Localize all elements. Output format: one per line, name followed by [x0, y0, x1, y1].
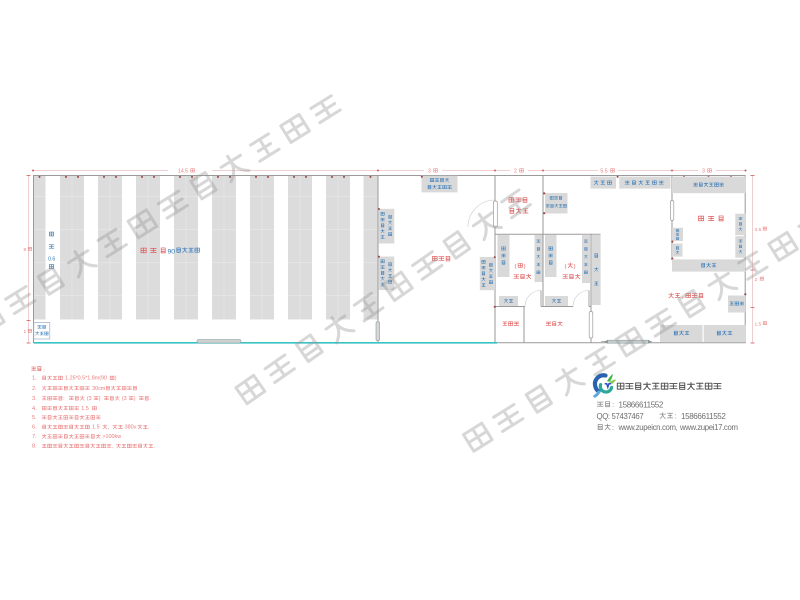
svg-text:QQ:: QQ: [597, 412, 610, 421]
svg-text:.: . [154, 444, 156, 450]
svg-text:,: , [108, 425, 110, 431]
svg-text:(3: (3 [122, 396, 127, 402]
svg-text:15866611552: 15866611552 [619, 400, 664, 409]
svg-text:,: , [112, 444, 114, 450]
svg-text:): ) [115, 376, 117, 382]
svg-text:15866611552: 15866611552 [681, 412, 726, 421]
svg-text:1.: 1. [32, 376, 37, 382]
svg-text:3.: 3. [32, 396, 37, 402]
svg-text:3: 3 [702, 169, 705, 175]
svg-text:4.: 4. [32, 406, 37, 412]
svg-text:0.6: 0.6 [48, 257, 55, 263]
svg-text:1.5: 1.5 [755, 321, 762, 327]
svg-text:8.: 8. [32, 444, 37, 450]
svg-text:1: 1 [24, 329, 27, 335]
svg-text:1.25*0.5*1.8m(90: 1.25*0.5*1.8m(90 [65, 376, 107, 382]
svg-text::: : [63, 396, 65, 402]
svg-text:.: . [149, 396, 151, 402]
svg-text:8: 8 [24, 247, 27, 253]
svg-text:6.: 6. [32, 425, 37, 431]
svg-text:(3: (3 [87, 396, 92, 402]
svg-text:www.zupei17.com: www.zupei17.com [679, 423, 738, 432]
svg-text:3.5: 3.5 [755, 227, 762, 233]
svg-text:3: 3 [428, 169, 431, 175]
svg-text:2: 2 [755, 277, 758, 283]
svg-text:57437467: 57437467 [612, 412, 644, 421]
svg-text:90: 90 [168, 248, 176, 255]
svg-text:(: ( [515, 264, 517, 270]
svg-text:1.5: 1.5 [92, 425, 100, 431]
svg-text:14.5: 14.5 [178, 169, 188, 175]
svg-text:.: . [148, 425, 150, 431]
svg-text::: : [43, 368, 45, 374]
svg-text::: : [675, 412, 677, 421]
svg-text:www.zupeicn.com: www.zupeicn.com [618, 423, 676, 432]
svg-text::: : [612, 400, 614, 409]
svg-text:): ) [574, 264, 576, 270]
svg-text:7.: 7. [32, 434, 37, 440]
svg-text:>100kw: >100kw [102, 434, 121, 440]
svg-text:5.5: 5.5 [600, 169, 607, 175]
svg-text:380v: 380v [125, 425, 137, 431]
svg-text:2: 2 [514, 169, 517, 175]
svg-text:2.: 2. [32, 386, 37, 392]
svg-text:,: , [676, 423, 678, 432]
svg-text:): ) [99, 396, 101, 402]
svg-text:): ) [134, 396, 136, 402]
svg-text:(: ( [565, 264, 567, 270]
svg-text::: : [612, 423, 614, 432]
svg-text:1.5: 1.5 [81, 406, 89, 412]
svg-text:): ) [524, 264, 526, 270]
svg-text:5.: 5. [32, 415, 37, 421]
svg-text:30cm: 30cm [92, 386, 106, 392]
